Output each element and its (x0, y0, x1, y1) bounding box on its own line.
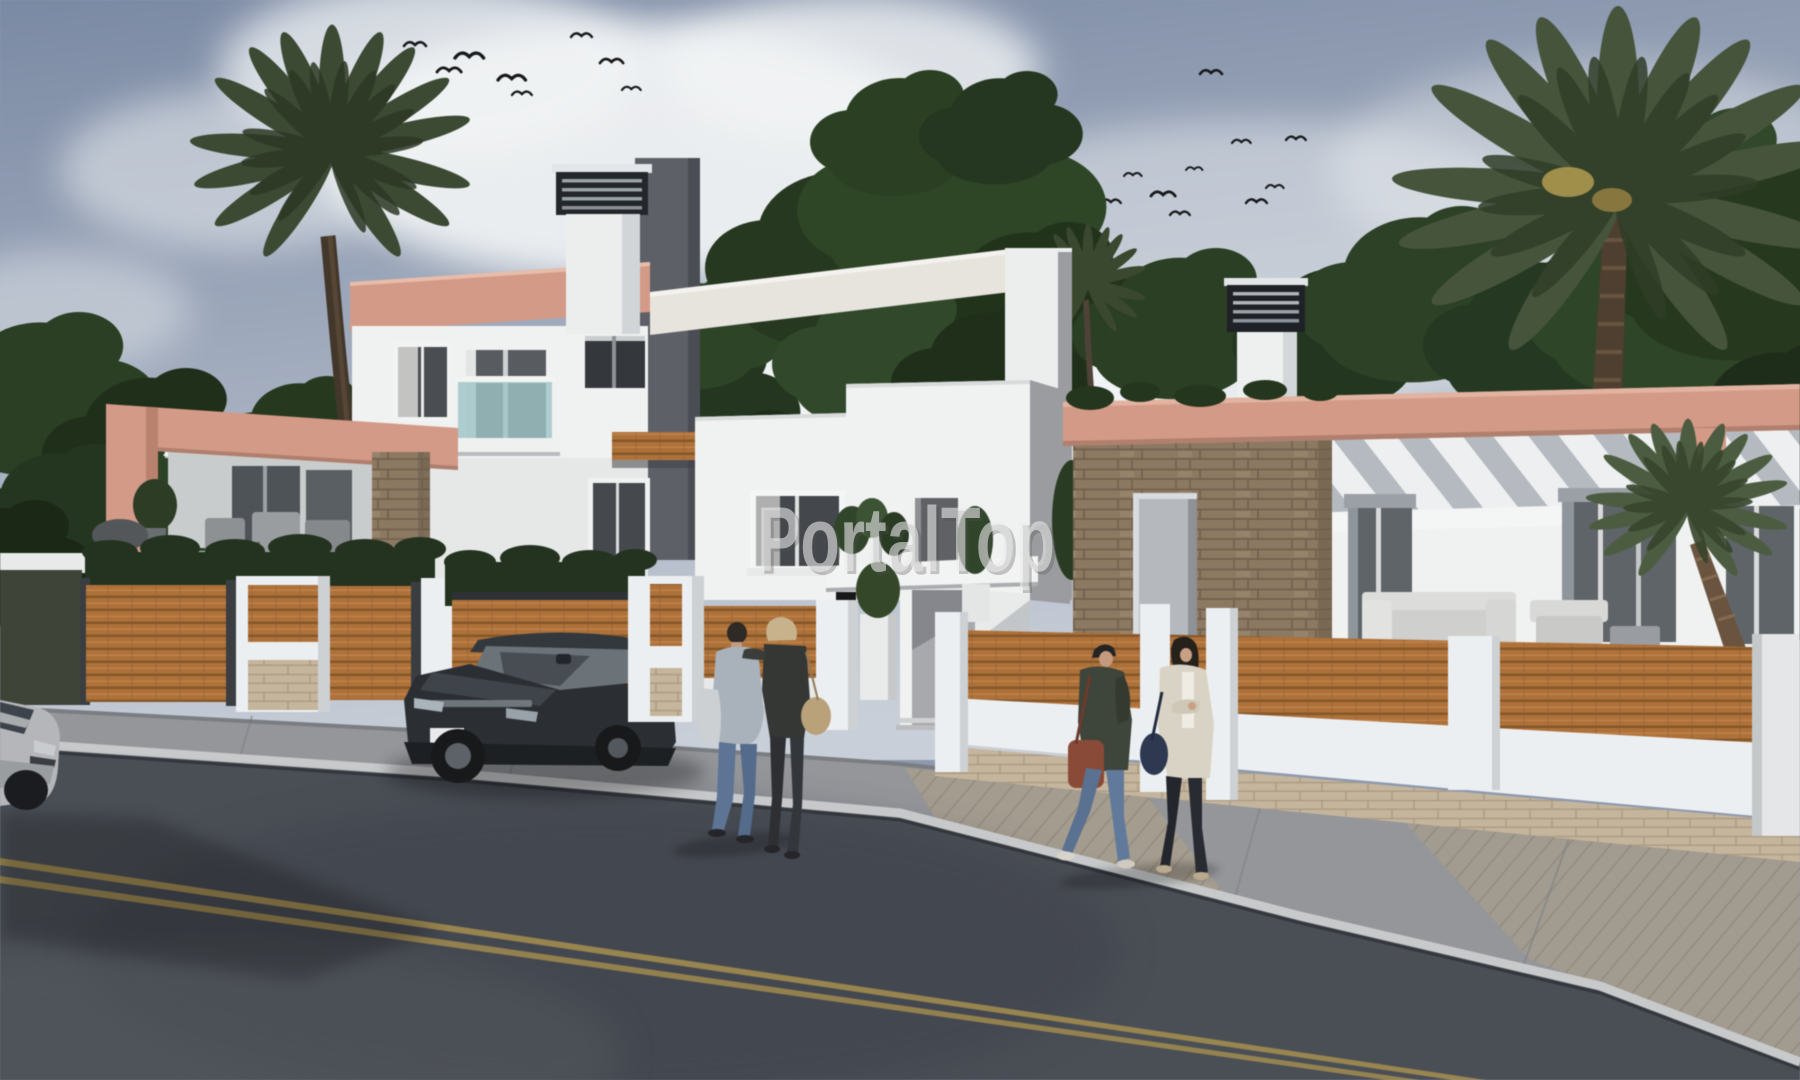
left-villa-window-tower (585, 336, 645, 388)
wood-accent-beam (612, 432, 700, 460)
fence-h-pillar-center (628, 576, 704, 722)
watermark-text: PortalTop (757, 489, 1055, 591)
tote-bag (1140, 733, 1168, 775)
fence-wood-panel (330, 586, 411, 700)
render-canvas: PortalTop PortalTop (0, 0, 1800, 1080)
fence-wood-panel (86, 585, 230, 702)
watermark: PortalTop PortalTop (757, 489, 1058, 594)
balcony-glass (458, 382, 552, 438)
left-villa-window-upper (393, 342, 452, 422)
handbag (801, 697, 831, 735)
villa-render-image: PortalTop PortalTop (0, 0, 1800, 1080)
left-villa-chimney (552, 164, 652, 334)
perimeter-fence-left (0, 534, 452, 716)
fence-h-pillar (236, 576, 330, 712)
